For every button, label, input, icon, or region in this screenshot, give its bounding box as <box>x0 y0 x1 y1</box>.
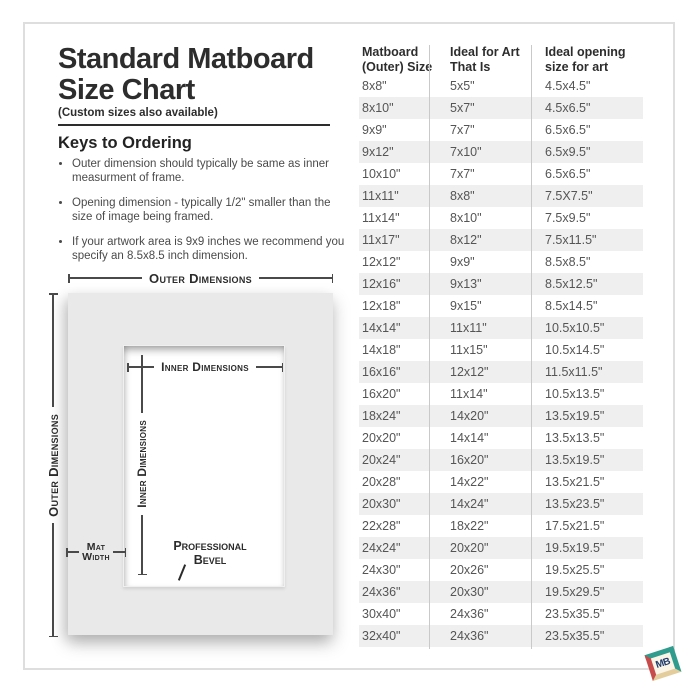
cell-art-size: 7x10" <box>429 145 531 159</box>
cell-art-size: 18x22" <box>429 519 531 533</box>
cell-outer-size: 30x40" <box>359 607 429 621</box>
table-row: 32x40"24x36"23.5x35.5" <box>359 625 643 647</box>
cell-outer-size: 12x12" <box>359 255 429 269</box>
cell-outer-size: 18x24" <box>359 409 429 423</box>
inner-dimensions-top-label: Inner Dimensions <box>154 360 256 374</box>
cell-art-size: 12x12" <box>429 365 531 379</box>
cell-opening-size: 8.5x8.5" <box>531 255 643 269</box>
cell-opening-size: 11.5x11.5" <box>531 365 643 379</box>
cell-opening-size: 23.5x35.5" <box>531 607 643 621</box>
cell-opening-size: 13.5x19.5" <box>531 409 643 423</box>
cell-art-size: 11x14" <box>429 387 531 401</box>
table-row: 22x28"18x22"17.5x21.5" <box>359 515 643 537</box>
keys-to-ordering-heading: Keys to Ordering <box>58 134 192 153</box>
cell-art-size: 5x7" <box>429 101 531 115</box>
cell-outer-size: 8x10" <box>359 101 429 115</box>
cell-opening-size: 7.5x11.5" <box>531 233 643 247</box>
cell-opening-size: 17.5x21.5" <box>531 519 643 533</box>
dimension-line <box>141 355 143 413</box>
cell-art-size: 5x5" <box>429 79 531 93</box>
table-row: 20x30"14x24"13.5x23.5" <box>359 493 643 515</box>
dimension-line <box>113 551 125 553</box>
dimension-line <box>70 277 143 279</box>
cell-art-size: 14x20" <box>429 409 531 423</box>
cell-opening-size: 4.5x4.5" <box>531 79 643 93</box>
cell-art-size: 8x8" <box>429 189 531 203</box>
cell-outer-size: 20x24" <box>359 453 429 467</box>
cell-outer-size: 24x36" <box>359 585 429 599</box>
dimension-tick <box>332 274 334 283</box>
cell-outer-size: 20x30" <box>359 497 429 511</box>
cell-outer-size: 11x11" <box>359 189 429 203</box>
cell-art-size: 20x30" <box>429 585 531 599</box>
cell-art-size: 7x7" <box>429 123 531 137</box>
cell-opening-size: 13.5x23.5" <box>531 497 643 511</box>
table-row: 8x8"5x5"4.5x4.5" <box>359 75 643 97</box>
cell-opening-size: 8.5x12.5" <box>531 277 643 291</box>
table-row: 9x12"7x10"6.5x9.5" <box>359 141 643 163</box>
cell-art-size: 7x7" <box>429 167 531 181</box>
dimension-line <box>52 523 54 635</box>
keys-to-ordering-list: Outer dimension should typically be same… <box>58 157 354 274</box>
table-row: 20x20"14x14"13.5x13.5" <box>359 427 643 449</box>
cell-art-size: 24x36" <box>429 607 531 621</box>
inner-dimensions-left-label: Inner Dimensions <box>135 413 149 515</box>
cell-art-size: 9x13" <box>429 277 531 291</box>
page-subtitle: (Custom sizes also available) <box>58 107 218 119</box>
cell-outer-size: 12x18" <box>359 299 429 313</box>
inner-height-dimension-arrow: Inner Dimensions <box>135 355 149 575</box>
cell-art-size: 14x14" <box>429 431 531 445</box>
divider-rule <box>58 124 330 126</box>
dimension-line <box>256 366 282 368</box>
table-row: 14x14"11x11"10.5x10.5" <box>359 317 643 339</box>
key-bullet-1: Outer dimension should typically be same… <box>72 157 354 185</box>
table-row: 24x24"20x20"19.5x19.5" <box>359 537 643 559</box>
cell-outer-size: 14x14" <box>359 321 429 335</box>
table-row: 14x18"11x15"10.5x14.5" <box>359 339 643 361</box>
cell-opening-size: 19.5x25.5" <box>531 563 643 577</box>
cell-outer-size: 12x16" <box>359 277 429 291</box>
table-row: 10x10"7x7"6.5x6.5" <box>359 163 643 185</box>
table-row: 20x24"16x20"13.5x19.5" <box>359 449 643 471</box>
table-row: 11x17"8x12"7.5x11.5" <box>359 229 643 251</box>
cell-outer-size: 20x28" <box>359 475 429 489</box>
cell-outer-size: 24x24" <box>359 541 429 555</box>
matboard-graphic <box>68 293 333 635</box>
header-opening-size: Ideal opening size for art <box>531 45 643 75</box>
cell-art-size: 24x36" <box>429 629 531 643</box>
dimension-line <box>52 295 54 407</box>
dimension-tick <box>49 636 58 638</box>
cell-art-size: 8x12" <box>429 233 531 247</box>
column-separator <box>531 45 532 649</box>
cell-outer-size: 16x20" <box>359 387 429 401</box>
cell-opening-size: 6.5x9.5" <box>531 145 643 159</box>
brand-logo-text: MB <box>654 656 671 671</box>
outer-height-dimension-arrow: Outer Dimensions <box>45 293 61 637</box>
table-row: 24x36"20x30"19.5x29.5" <box>359 581 643 603</box>
cell-opening-size: 23.5x35.5" <box>531 629 643 643</box>
cell-art-size: 11x11" <box>429 321 531 335</box>
page-title: Standard Matboard Size Chart <box>58 44 314 106</box>
header-art-size: Ideal for Art That Is <box>429 45 531 75</box>
table-row: 12x18"9x15"8.5x14.5" <box>359 295 643 317</box>
cell-opening-size: 10.5x10.5" <box>531 321 643 335</box>
dimension-line <box>141 515 143 573</box>
outer-dimensions-left-label: Outer Dimensions <box>46 407 61 524</box>
cell-opening-size: 6.5x6.5" <box>531 167 643 181</box>
cell-outer-size: 8x8" <box>359 79 429 93</box>
cell-outer-size: 24x30" <box>359 563 429 577</box>
cell-art-size: 9x15" <box>429 299 531 313</box>
page-title-line-2: Size Chart <box>58 75 314 106</box>
key-bullet-2: Opening dimension - typically 1/2" small… <box>72 196 354 224</box>
inner-width-dimension-arrow: Inner Dimensions <box>127 359 283 375</box>
cell-outer-size: 10x10" <box>359 167 429 181</box>
table-row: 8x10"5x7"4.5x6.5" <box>359 97 643 119</box>
cell-opening-size: 19.5x19.5" <box>531 541 643 555</box>
cell-opening-size: 13.5x19.5" <box>531 453 643 467</box>
cell-opening-size: 10.5x14.5" <box>531 343 643 357</box>
dimension-tick <box>138 574 147 576</box>
cell-opening-size: 7.5X7.5" <box>531 189 643 203</box>
page-title-line-1: Standard Matboard <box>58 44 314 75</box>
table-row: 18x24"14x20"13.5x19.5" <box>359 405 643 427</box>
cell-outer-size: 11x17" <box>359 233 429 247</box>
cell-opening-size: 7.5x9.5" <box>531 211 643 225</box>
table-row: 16x20"11x14"10.5x13.5" <box>359 383 643 405</box>
size-table: Matboard (Outer) Size Ideal for Art That… <box>359 45 643 647</box>
cell-art-size: 14x24" <box>429 497 531 511</box>
table-row: 11x14"8x10"7.5x9.5" <box>359 207 643 229</box>
cell-opening-size: 13.5x13.5" <box>531 431 643 445</box>
cell-opening-size: 4.5x6.5" <box>531 101 643 115</box>
cell-outer-size: 32x40" <box>359 629 429 643</box>
cell-opening-size: 13.5x21.5" <box>531 475 643 489</box>
cell-opening-size: 6.5x6.5" <box>531 123 643 137</box>
size-table-body: 8x8"5x5"4.5x4.5"8x10"5x7"4.5x6.5"9x9"7x7… <box>359 75 643 647</box>
table-row: 9x9"7x7"6.5x6.5" <box>359 119 643 141</box>
table-row: 12x12"9x9"8.5x8.5" <box>359 251 643 273</box>
cell-art-size: 16x20" <box>429 453 531 467</box>
mat-width-label: MatWidth <box>79 542 113 562</box>
dimension-line <box>68 551 80 553</box>
dimension-tick <box>282 363 284 372</box>
cell-art-size: 11x15" <box>429 343 531 357</box>
mat-width-arrow: MatWidth <box>66 542 126 562</box>
dimension-line <box>259 277 332 279</box>
dimension-tick <box>125 548 127 557</box>
cell-opening-size: 10.5x13.5" <box>531 387 643 401</box>
table-row: 11x11"8x8"7.5X7.5" <box>359 185 643 207</box>
cell-outer-size: 9x9" <box>359 123 429 137</box>
cell-opening-size: 8.5x14.5" <box>531 299 643 313</box>
size-table-header: Matboard (Outer) Size Ideal for Art That… <box>359 45 643 75</box>
outer-width-dimension-arrow: Outer Dimensions <box>68 270 333 286</box>
cell-art-size: 20x20" <box>429 541 531 555</box>
table-row: 24x30"20x26"19.5x25.5" <box>359 559 643 581</box>
cell-outer-size: 16x16" <box>359 365 429 379</box>
cell-art-size: 20x26" <box>429 563 531 577</box>
table-row: 20x28"14x22"13.5x21.5" <box>359 471 643 493</box>
outer-dimensions-top-label: Outer Dimensions <box>142 271 259 286</box>
cell-outer-size: 14x18" <box>359 343 429 357</box>
cell-art-size: 14x22" <box>429 475 531 489</box>
cell-art-size: 8x10" <box>429 211 531 225</box>
column-separator <box>429 45 430 649</box>
cell-outer-size: 11x14" <box>359 211 429 225</box>
key-bullet-3: If your artwork area is 9x9 inches we re… <box>72 235 354 263</box>
cell-opening-size: 19.5x29.5" <box>531 585 643 599</box>
table-row: 12x16"9x13"8.5x12.5" <box>359 273 643 295</box>
table-row: 16x16"12x12"11.5x11.5" <box>359 361 643 383</box>
cell-art-size: 9x9" <box>429 255 531 269</box>
professional-bevel-label: Professional Bevel <box>164 539 256 567</box>
cell-outer-size: 20x20" <box>359 431 429 445</box>
cell-outer-size: 9x12" <box>359 145 429 159</box>
header-outer-size: Matboard (Outer) Size <box>359 45 429 75</box>
cell-outer-size: 22x28" <box>359 519 429 533</box>
table-row: 30x40"24x36"23.5x35.5" <box>359 603 643 625</box>
